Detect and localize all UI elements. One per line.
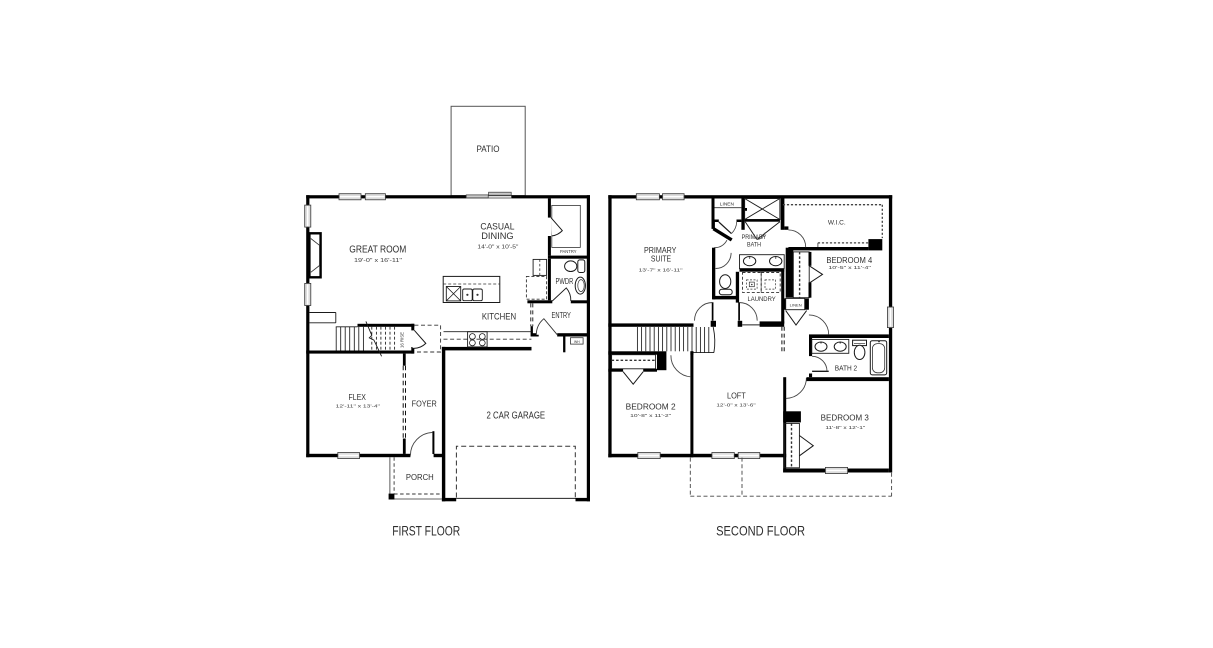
svg-text:ENTRY: ENTRY <box>552 311 572 320</box>
svg-text:PORCH: PORCH <box>406 472 434 482</box>
svg-text:12'-11" x 13'-4": 12'-11" x 13'-4" <box>336 403 381 409</box>
svg-text:CASUAL: CASUAL <box>480 221 514 231</box>
svg-text:LINEN: LINEN <box>720 201 734 206</box>
svg-text:BEDROOM 2: BEDROOM 2 <box>626 402 677 411</box>
svg-text:PWDR: PWDR <box>556 277 574 286</box>
svg-text:19'-0" x 16'-11": 19'-0" x 16'-11" <box>354 258 402 264</box>
svg-text:FIRST FLOOR: FIRST FLOOR <box>392 523 460 539</box>
svg-text:W.I.C.: W.I.C. <box>828 221 846 227</box>
svg-text:LINEN: LINEN <box>790 303 802 307</box>
svg-text:WH: WH <box>574 340 580 344</box>
svg-text:FLEX: FLEX <box>349 392 367 402</box>
svg-text:16 RISE: 16 RISE <box>399 332 404 348</box>
svg-text:BEDROOM 4: BEDROOM 4 <box>826 256 872 265</box>
svg-text:PATIO: PATIO <box>477 144 500 154</box>
svg-text:DINING: DINING <box>481 231 513 241</box>
svg-text:FOYER: FOYER <box>412 399 437 409</box>
svg-text:SUITE: SUITE <box>651 253 671 263</box>
svg-text:14'-0" x 10'-5": 14'-0" x 10'-5" <box>477 244 518 250</box>
svg-text:2 CAR GARAGE: 2 CAR GARAGE <box>486 410 545 421</box>
svg-text:KITCHEN: KITCHEN <box>482 312 516 322</box>
svg-text:13'-7" x 16'-11": 13'-7" x 16'-11" <box>639 267 683 273</box>
svg-text:BATH 2: BATH 2 <box>835 364 857 373</box>
svg-text:PRIMARY: PRIMARY <box>742 234 767 241</box>
svg-text:10'-8" x 11'-2": 10'-8" x 11'-2" <box>630 413 671 419</box>
svg-text:10'-5" x 11'-4": 10'-5" x 11'-4" <box>828 265 871 270</box>
svg-text:BATH: BATH <box>747 242 761 249</box>
svg-text:11'-8" x 12'-1": 11'-8" x 12'-1" <box>825 425 865 431</box>
svg-text:BEDROOM 3: BEDROOM 3 <box>821 414 869 423</box>
svg-text:LOFT: LOFT <box>727 391 746 401</box>
svg-text:SECOND FLOOR: SECOND FLOOR <box>716 523 805 539</box>
svg-text:12'-0" x 13'-6": 12'-0" x 13'-6" <box>716 403 756 409</box>
svg-text:GREAT ROOM: GREAT ROOM <box>349 244 406 255</box>
svg-text:PANTRY: PANTRY <box>560 249 577 254</box>
svg-text:LAUNDRY: LAUNDRY <box>748 296 776 303</box>
